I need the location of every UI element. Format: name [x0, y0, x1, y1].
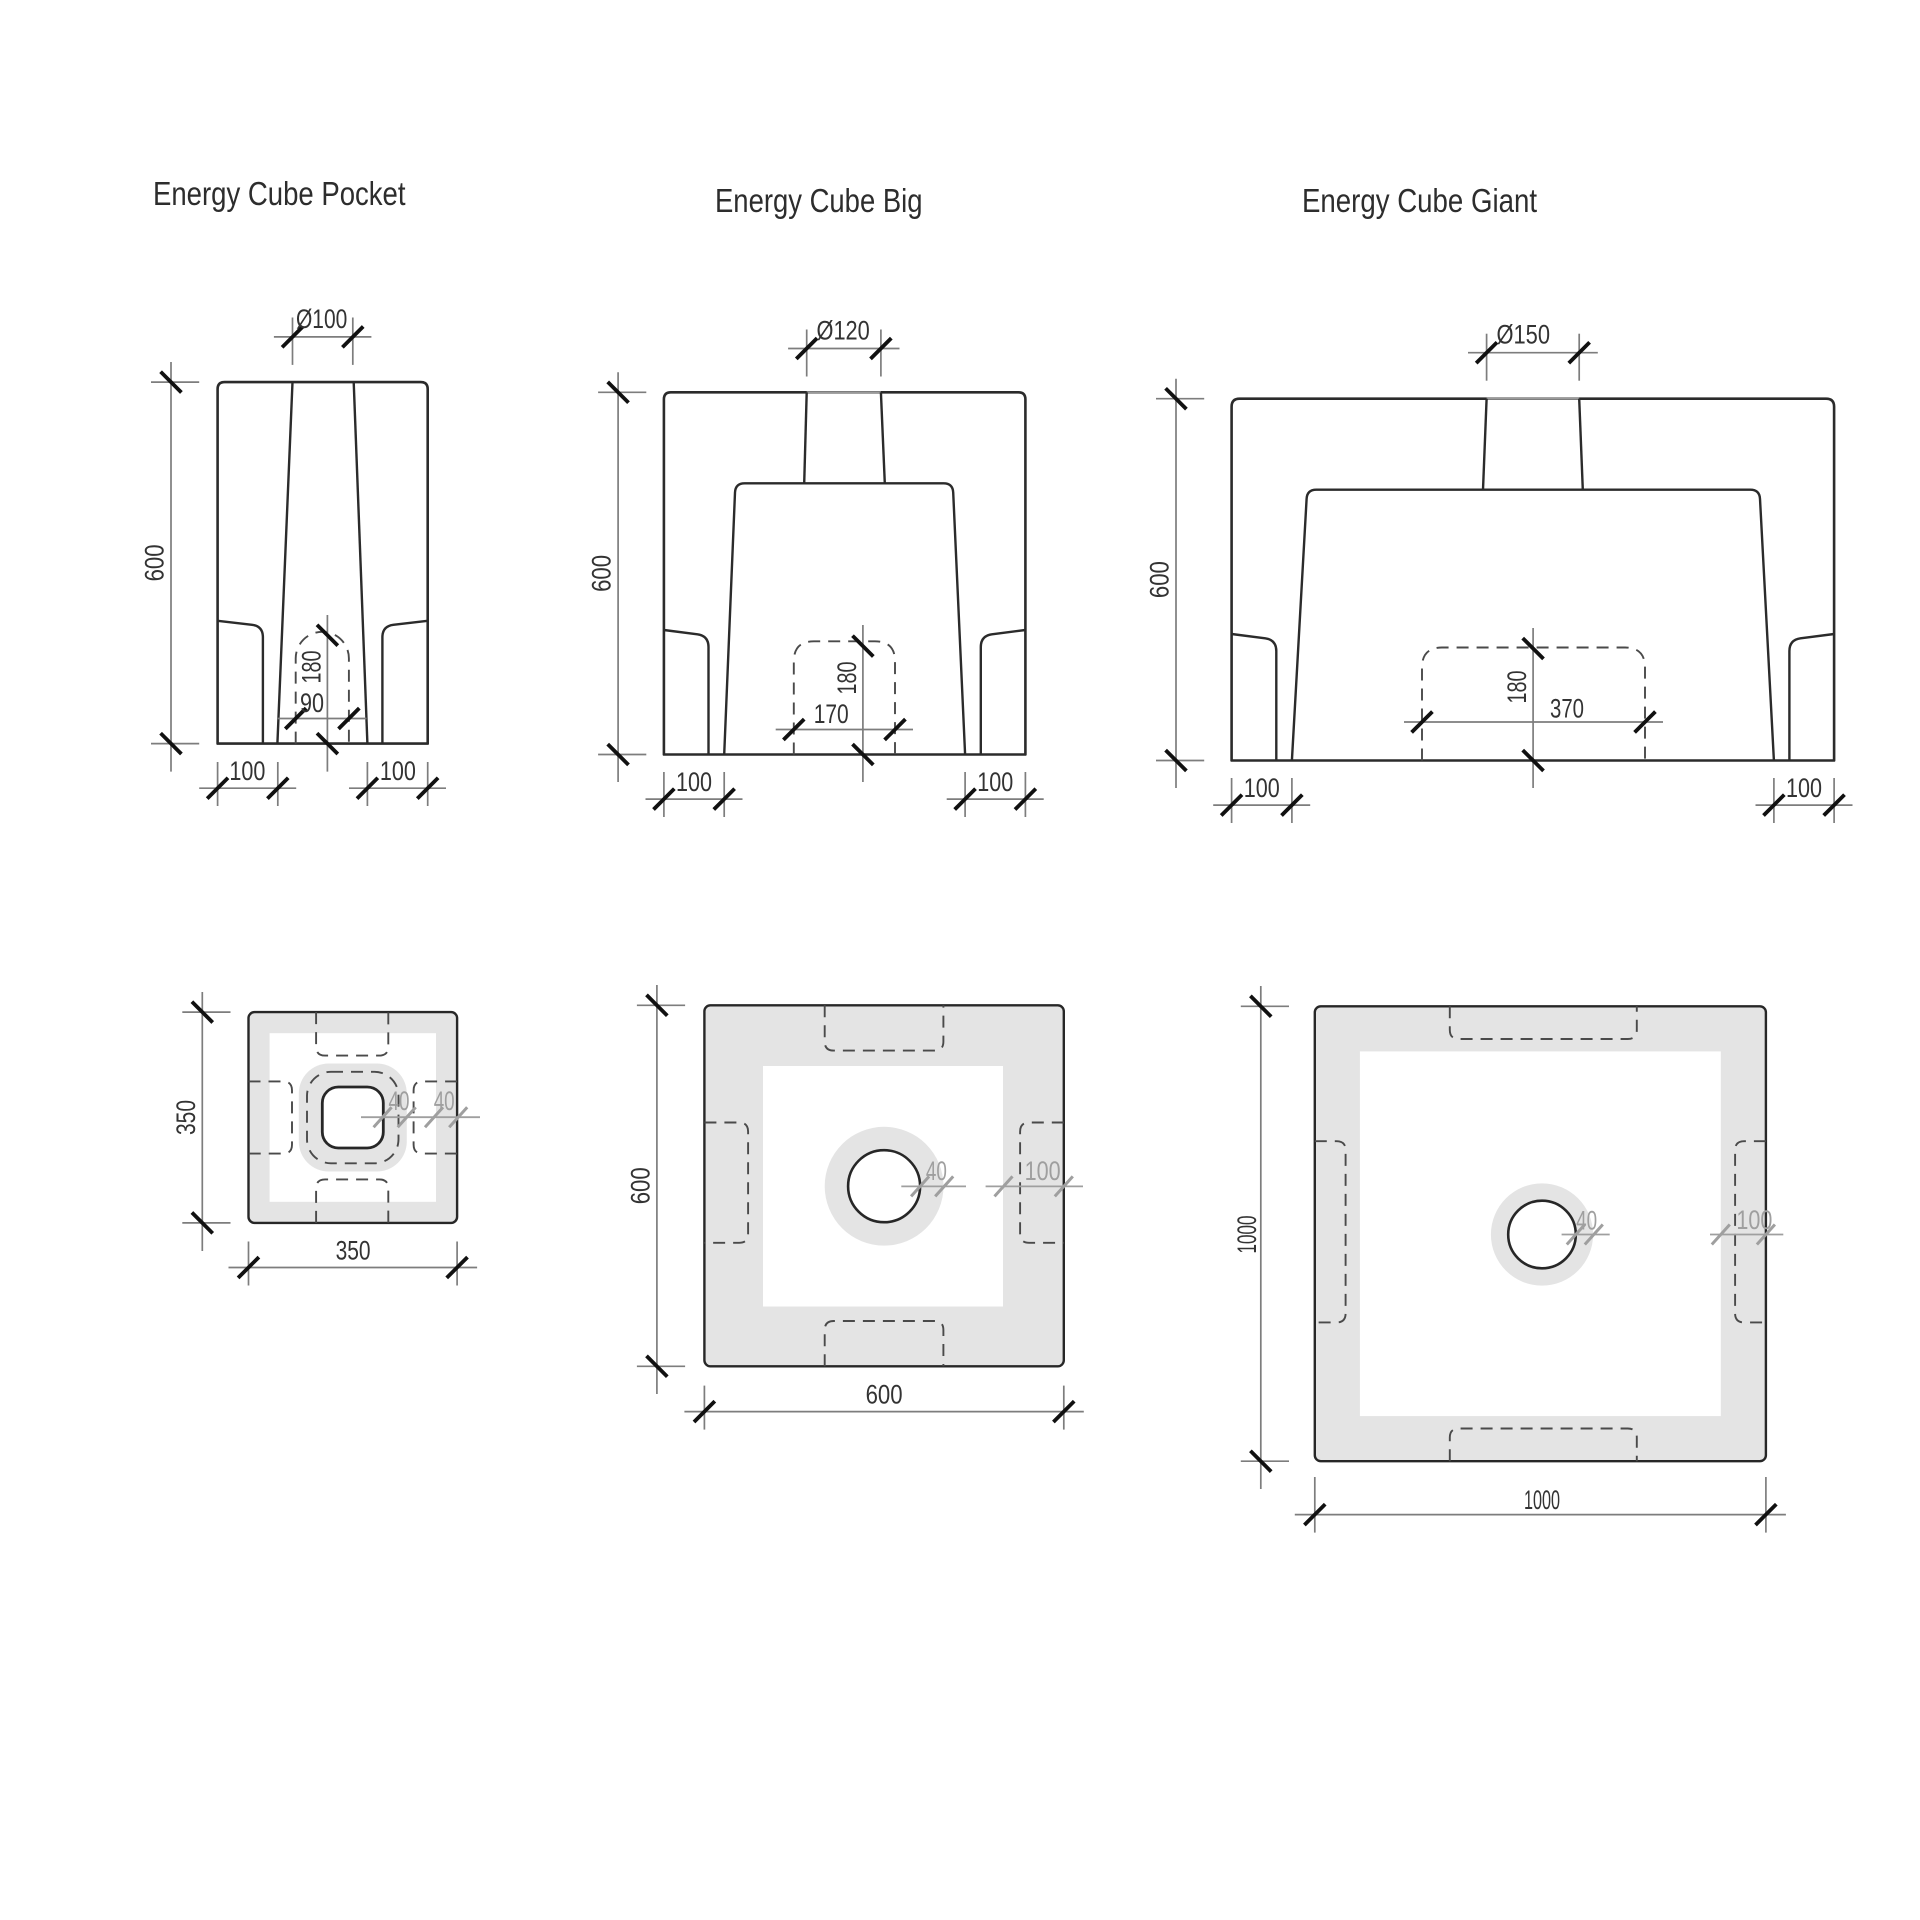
svg-text:180: 180 [297, 651, 327, 684]
svg-text:100: 100 [676, 767, 712, 797]
svg-text:Ø150: Ø150 [1497, 320, 1551, 350]
svg-text:600: 600 [587, 555, 617, 592]
svg-text:Ø120: Ø120 [817, 316, 870, 346]
svg-text:600: 600 [140, 544, 170, 581]
svg-text:Energy Cube Big: Energy Cube Big [715, 182, 923, 219]
svg-text:100: 100 [229, 756, 265, 786]
svg-text:40: 40 [926, 1156, 947, 1186]
svg-text:1000: 1000 [1232, 1216, 1262, 1254]
svg-text:1000: 1000 [1524, 1485, 1560, 1515]
svg-text:600: 600 [866, 1380, 903, 1410]
svg-text:Ø100: Ø100 [296, 304, 347, 334]
svg-text:180: 180 [1502, 671, 1532, 704]
svg-text:100: 100 [380, 756, 416, 786]
svg-text:100: 100 [1736, 1205, 1772, 1235]
svg-text:180: 180 [832, 662, 862, 695]
svg-text:90: 90 [300, 688, 324, 718]
svg-text:100: 100 [1025, 1156, 1061, 1186]
svg-text:Energy Cube Giant: Energy Cube Giant [1302, 182, 1537, 219]
svg-text:100: 100 [977, 767, 1013, 797]
svg-text:100: 100 [1244, 773, 1280, 803]
svg-text:350: 350 [336, 1236, 371, 1266]
svg-text:370: 370 [1550, 694, 1584, 724]
svg-text:40: 40 [434, 1086, 455, 1116]
svg-text:Energy Cube Pocket: Energy Cube Pocket [153, 175, 406, 212]
svg-text:40: 40 [389, 1086, 410, 1116]
svg-text:170: 170 [814, 699, 849, 729]
svg-text:600: 600 [625, 1167, 655, 1204]
svg-text:600: 600 [1145, 561, 1175, 598]
svg-text:350: 350 [171, 1100, 201, 1135]
svg-text:100: 100 [1786, 773, 1822, 803]
svg-text:40: 40 [1576, 1206, 1597, 1236]
